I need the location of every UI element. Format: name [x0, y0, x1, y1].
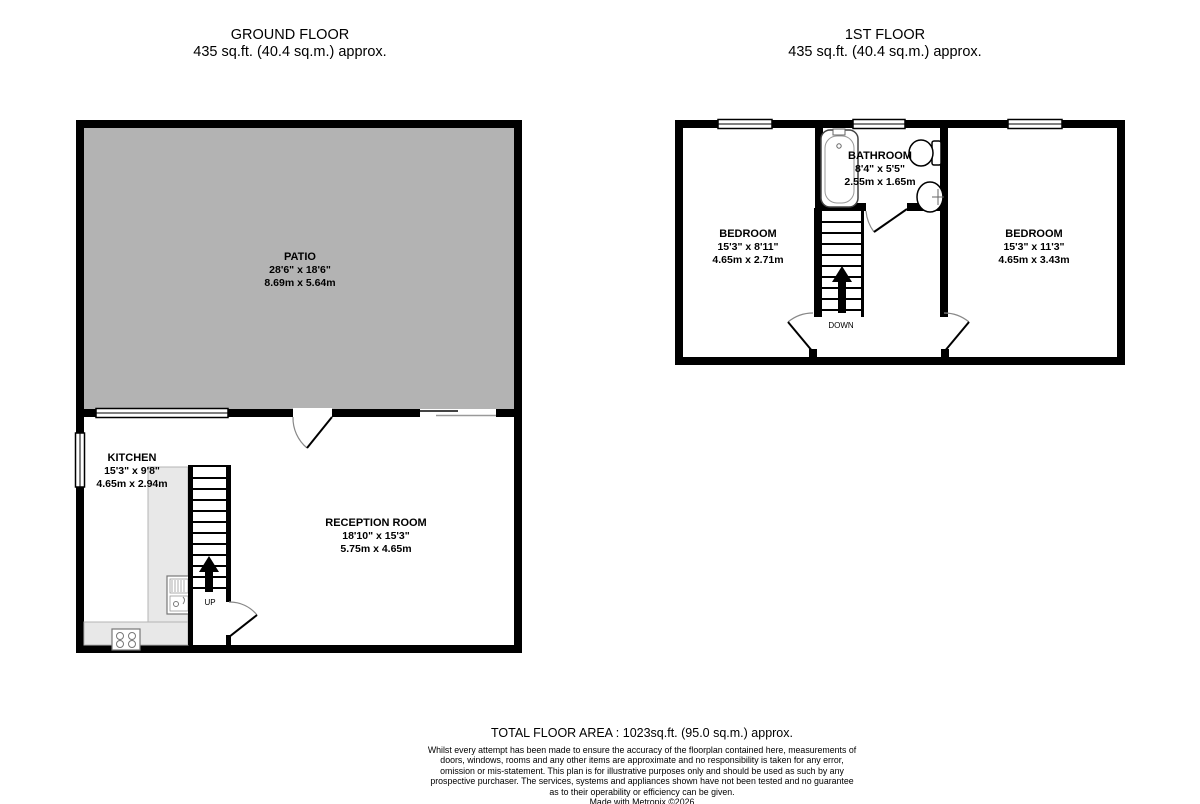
window — [76, 433, 85, 487]
window — [718, 120, 772, 129]
room-name: PATIO — [264, 251, 335, 264]
window — [853, 120, 905, 129]
sink-basin — [917, 182, 944, 212]
room-name: KITCHEN — [96, 452, 167, 465]
staircase-up — [188, 465, 231, 645]
kitchen-counter — [84, 467, 188, 645]
room-label-bedroom-left: BEDROOM 15'3" x 8'11" 4.65m x 2.71m — [712, 228, 783, 267]
ground-floor-walls — [76, 409, 522, 653]
first-floor-title: 1ST FLOOR 435 sq.ft. (40.4 sq.m.) approx… — [788, 27, 981, 61]
room-dims-imperial: 8'4" x 5'5" — [844, 163, 915, 176]
room-dims-metric: 4.65m x 2.71m — [712, 254, 783, 267]
floor-area: 435 sq.ft. (40.4 sq.m.) approx. — [193, 44, 386, 61]
kitchen-hob — [112, 629, 140, 650]
room-dims-imperial: 15'3" x 8'11" — [712, 241, 783, 254]
ground-floor-plan — [76, 120, 523, 653]
floorplan-page: GROUND FLOOR 435 sq.ft. (40.4 sq.m.) app… — [0, 0, 1200, 804]
room-dims-metric: 4.65m x 2.94m — [96, 478, 167, 491]
stairs-down-label: DOWN — [828, 321, 853, 330]
window — [96, 409, 228, 418]
room-dims-imperial: 28'6" x 18'6" — [264, 264, 335, 277]
total-floor-area: TOTAL FLOOR AREA : 1023sq.ft. (95.0 sq.m… — [412, 726, 872, 740]
room-dims-imperial: 15'3" x 9'8" — [96, 465, 167, 478]
ground-floor-title: GROUND FLOOR 435 sq.ft. (40.4 sq.m.) app… — [193, 27, 386, 61]
kitchen-sink — [167, 576, 191, 614]
window — [1008, 120, 1062, 129]
room-label-bathroom: BATHROOM 8'4" x 5'5" 2.55m x 1.65m — [844, 150, 915, 189]
metropix-credit: Made with Metropix ©2026 — [412, 797, 872, 804]
room-label-bedroom-right: BEDROOM 15'3" x 11'3" 4.65m x 3.43m — [998, 228, 1069, 267]
floor-name: 1ST FLOOR — [788, 27, 981, 44]
floor-area: 435 sq.ft. (40.4 sq.m.) approx. — [788, 44, 981, 61]
room-name: BEDROOM — [712, 228, 783, 241]
room-label-kitchen: KITCHEN 15'3" x 9'8" 4.65m x 2.94m — [96, 452, 167, 491]
sliding-door — [420, 411, 496, 416]
room-dims-imperial: 15'3" x 11'3" — [998, 241, 1069, 254]
room-name: RECEPTION ROOM — [325, 517, 426, 530]
floorplan-graphics — [0, 0, 1200, 804]
room-dims-metric: 5.75m x 4.65m — [325, 543, 426, 556]
room-dims-metric: 8.69m x 5.64m — [264, 277, 335, 290]
room-name: BATHROOM — [844, 150, 915, 163]
room-label-reception: RECEPTION ROOM 18'10" x 15'3" 5.75m x 4.… — [325, 517, 426, 556]
footer: TOTAL FLOOR AREA : 1023sq.ft. (95.0 sq.m… — [412, 726, 872, 804]
room-label-patio: PATIO 28'6" x 18'6" 8.69m x 5.64m — [264, 251, 335, 290]
stairs-up-arrow — [199, 556, 219, 592]
stairs-up-label: UP — [204, 598, 215, 607]
hall-door — [229, 602, 257, 637]
room-dims-metric: 4.65m x 3.43m — [998, 254, 1069, 267]
room-name: BEDROOM — [998, 228, 1069, 241]
room-dims-metric: 2.55m x 1.65m — [844, 176, 915, 189]
floor-name: GROUND FLOOR — [193, 27, 386, 44]
room-dims-imperial: 18'10" x 15'3" — [325, 530, 426, 543]
patio-door — [293, 417, 332, 448]
disclaimer-text: Whilst every attempt has been made to en… — [426, 745, 858, 797]
